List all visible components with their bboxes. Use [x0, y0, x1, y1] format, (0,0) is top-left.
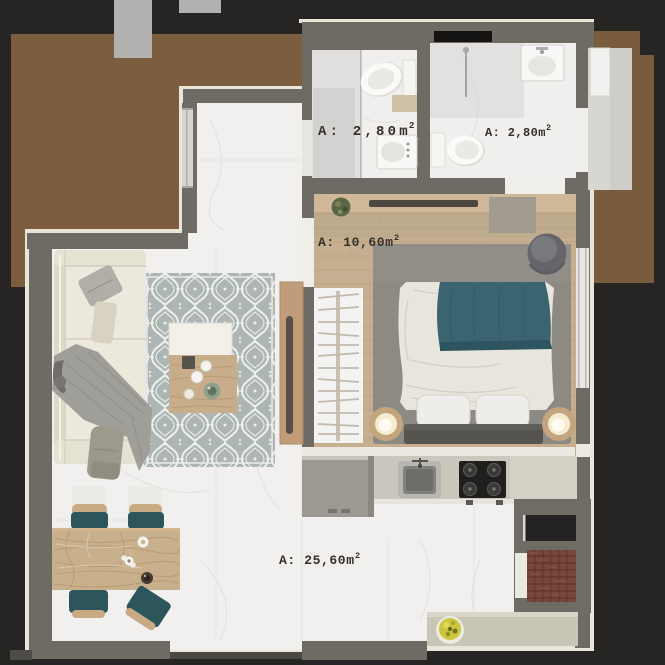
svg-text:A: 10,60m: A: 10,60m [318, 235, 394, 250]
svg-text:2: 2 [394, 233, 399, 243]
svg-text:A: 2,80m: A: 2,80m [318, 124, 411, 140]
svg-text:2: 2 [409, 121, 414, 131]
svg-text:A: 25,60m: A: 25,60m [279, 553, 355, 568]
svg-text:A: 2,80m: A: 2,80m [485, 126, 546, 140]
svg-text:2: 2 [546, 123, 551, 133]
svg-text:2: 2 [355, 551, 360, 561]
